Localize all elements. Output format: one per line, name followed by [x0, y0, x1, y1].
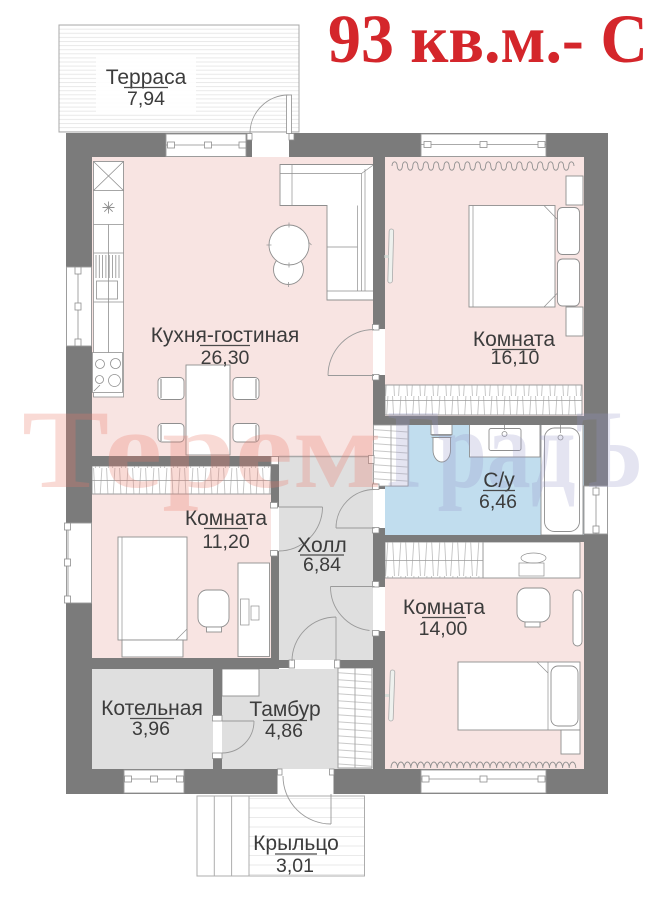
- svg-text:Терраса: Терраса: [106, 66, 187, 89]
- svg-text:6,84: 6,84: [303, 554, 341, 576]
- svg-text:93 кв.м.- С: 93 кв.м.- С: [328, 1, 648, 77]
- svg-text:С/у: С/у: [483, 469, 515, 492]
- svg-text:3,01: 3,01: [276, 855, 314, 877]
- svg-text:3,96: 3,96: [132, 718, 170, 740]
- svg-text:14,00: 14,00: [419, 618, 468, 640]
- svg-text:Кухня-гостиная: Кухня-гостиная: [151, 324, 300, 347]
- svg-text:Комната: Комната: [403, 596, 486, 619]
- svg-text:4,86: 4,86: [265, 720, 303, 742]
- svg-text:11,20: 11,20: [202, 531, 250, 553]
- svg-text:6,46: 6,46: [479, 491, 517, 513]
- svg-text:26,30: 26,30: [201, 347, 250, 369]
- svg-text:Терем: Терем: [22, 388, 382, 512]
- svg-text:Комната: Комната: [185, 507, 268, 530]
- svg-text:Крыльцо: Крыльцо: [253, 832, 339, 855]
- svg-text:Тамбур: Тамбур: [249, 698, 320, 721]
- svg-text:16,10: 16,10: [491, 347, 540, 369]
- svg-text:7,94: 7,94: [127, 88, 165, 110]
- svg-text:Котельная: Котельная: [101, 697, 203, 720]
